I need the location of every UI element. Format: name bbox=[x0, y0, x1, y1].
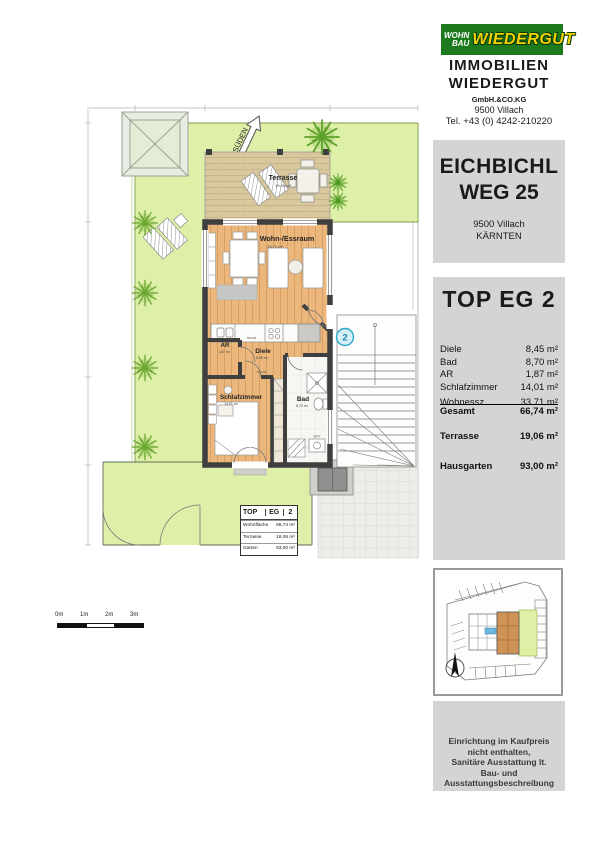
company-name-line2: WIEDERGUT bbox=[433, 75, 565, 92]
scale-segment bbox=[86, 623, 115, 628]
project-name-line2: WEG 25 bbox=[433, 181, 565, 205]
scale-2m: 2m bbox=[105, 612, 113, 618]
room-row: Schlafzimmer14,01 m² bbox=[440, 382, 558, 395]
bath-corner-unit bbox=[288, 439, 305, 457]
scale-0m: 0m bbox=[55, 612, 63, 618]
total-row: Gesamt66,74 m² bbox=[440, 404, 558, 419]
scale-segment bbox=[57, 623, 86, 628]
nightstand bbox=[224, 386, 232, 394]
site-plan-thumbnail bbox=[433, 568, 563, 696]
room-area-table: Diele8,45 m² Bad8,70 m² AR1,87 m² Schlaf… bbox=[440, 344, 558, 473]
ar-area: 1,87 m² bbox=[218, 350, 231, 354]
door-size-label-1: 90/205 bbox=[247, 336, 257, 340]
bedroom-label: Schlafzimmer bbox=[220, 394, 263, 401]
unit-title: TOP EG 2 bbox=[433, 286, 565, 313]
walkway bbox=[310, 460, 418, 558]
scale-segment bbox=[115, 623, 144, 628]
shower bbox=[307, 373, 327, 393]
legend-unit: 2 bbox=[283, 509, 297, 516]
legend-top: TOP bbox=[241, 509, 265, 516]
terrace-row: Terrasse19,06 m² bbox=[440, 431, 558, 444]
plan-legend-header: TOP EG 2 bbox=[241, 506, 297, 520]
scale-bar: 0m 1m 2m 3m bbox=[55, 612, 155, 634]
company-city: 9500 Villach bbox=[433, 105, 565, 115]
room-row: Bad8,70 m² bbox=[440, 357, 558, 370]
terrace-label: Terrasse bbox=[269, 175, 298, 182]
plan-legend: TOP EG 2 Wohnfläche 66,74 m² Terrasse 19… bbox=[240, 505, 298, 556]
flyer-page: SÜDEN Terrasse 19,06 m² bbox=[0, 0, 600, 848]
company-name-line1: IMMOBILIEN bbox=[433, 57, 565, 74]
floor-plan: SÜDEN Terrasse 19,06 m² bbox=[35, 85, 430, 660]
project-city: 9500 Villach bbox=[433, 219, 565, 230]
unit-marker-number: 2 bbox=[342, 333, 347, 344]
bath-area: 8,70 m² bbox=[296, 404, 309, 408]
project-region: KÄRNTEN bbox=[433, 231, 565, 242]
disclaimer-text: Einrichtung im Kaufpreis nicht enthalten… bbox=[433, 736, 565, 789]
livingroom-area: 33,71 m² bbox=[267, 244, 283, 249]
scale-1m: 1m bbox=[80, 612, 88, 618]
bedroom-area: 14,01 m² bbox=[224, 402, 239, 406]
room-row: AR1,87 m² bbox=[440, 369, 558, 382]
ar-label: AR bbox=[221, 343, 230, 349]
company-sub: GmbH.&CO.KG bbox=[433, 95, 565, 104]
doormat bbox=[234, 469, 266, 475]
diele-label: Diele bbox=[255, 348, 271, 355]
site-garden-highlight bbox=[519, 610, 537, 656]
washer-label: W+T bbox=[314, 435, 321, 439]
legend-row: Terrasse 19,06 m² bbox=[241, 532, 297, 544]
legend-row: Wohnfläche 66,74 m² bbox=[241, 520, 297, 532]
built-ins bbox=[209, 233, 216, 288]
garden-row: Hausgarten93,00 m² bbox=[440, 461, 558, 474]
room-row-clipped: Wohnessz.33,71 m² bbox=[440, 397, 558, 404]
rug bbox=[217, 285, 257, 300]
project-name-line1: EICHBICHL bbox=[433, 155, 565, 179]
logo-wohnbau: WOHN BAU bbox=[444, 32, 469, 48]
site-plan-map bbox=[435, 570, 561, 694]
closet bbox=[274, 379, 284, 463]
door-size-label-2: 80/205 bbox=[257, 370, 267, 374]
washer bbox=[309, 439, 325, 452]
room-row: Diele8,45 m² bbox=[440, 344, 558, 357]
terrace-area: 19,06 m² bbox=[275, 183, 291, 188]
logo-wiedergut: WIEDERGUT bbox=[472, 31, 574, 49]
diele-area: 8,45 m² bbox=[256, 356, 269, 360]
legend-eg: EG bbox=[265, 509, 283, 516]
toilet bbox=[314, 398, 328, 410]
unit-marker: 2 bbox=[337, 329, 354, 346]
livingroom-label: Wohn-/Essraum bbox=[260, 234, 315, 243]
bath-label: Bad bbox=[297, 396, 309, 403]
scale-3m: 3m bbox=[130, 612, 138, 618]
company-logo: WOHN BAU WIEDERGUT bbox=[441, 24, 563, 55]
site-label-chip bbox=[485, 628, 496, 634]
terrace: Terrasse 19,06 m² bbox=[205, 149, 330, 222]
pavilion bbox=[122, 112, 188, 176]
company-phone: Tel. +43 (0) 4242-210220 bbox=[433, 116, 565, 127]
legend-row: Garten 93,00 m² bbox=[241, 543, 297, 555]
